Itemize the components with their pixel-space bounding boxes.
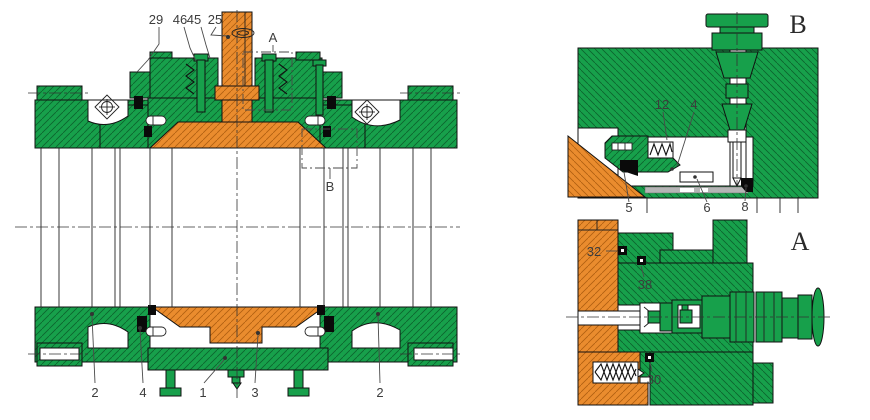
seal xyxy=(134,96,143,109)
bolt-head xyxy=(160,388,181,396)
main-section-view: A B 29 46 45 25 2 4 1 3 xyxy=(15,10,460,400)
callout-6: 6 xyxy=(703,200,710,215)
break-lines xyxy=(647,197,798,213)
seal xyxy=(148,305,156,315)
gland-right-cap xyxy=(296,52,320,60)
pin xyxy=(305,116,325,125)
housing-bottom-ext xyxy=(753,363,773,403)
bore-lines xyxy=(41,148,431,307)
callout-46: 46 xyxy=(173,12,187,27)
drain-plug xyxy=(228,370,244,377)
callout-2-right: 2 xyxy=(376,385,383,400)
bolt-shaft xyxy=(166,370,175,388)
seat-face-insert xyxy=(645,187,748,193)
stud-bolt xyxy=(197,60,205,112)
callout-12: 12 xyxy=(655,97,669,112)
valve-drawing: A B 29 46 45 25 2 4 1 3 xyxy=(0,0,870,420)
stud-bolt xyxy=(265,60,273,112)
seal xyxy=(327,96,336,109)
pin xyxy=(146,116,166,125)
gland-left xyxy=(150,58,218,98)
callout-30: 30 xyxy=(647,372,661,387)
fitting-pin xyxy=(682,305,688,310)
callout-3: 3 xyxy=(251,385,258,400)
housing-bottom-block xyxy=(650,352,753,405)
seat-pins xyxy=(146,116,325,336)
seat-retainer xyxy=(612,143,632,150)
housing-tower xyxy=(713,220,747,263)
seal xyxy=(324,316,334,332)
pin xyxy=(305,327,325,336)
callout-1: 1 xyxy=(199,385,206,400)
fitting-spacer xyxy=(782,298,798,338)
callout-5: 5 xyxy=(625,200,632,215)
seal xyxy=(144,126,152,137)
callout-4b: 4 xyxy=(690,97,697,112)
housing-step xyxy=(660,250,713,263)
bolt-head xyxy=(288,388,309,396)
ball-bottom-trunnion xyxy=(152,307,324,343)
drain-plug xyxy=(232,377,240,383)
callout-4: 4 xyxy=(139,385,146,400)
detail-view-b: 12 4 5 6 8 B xyxy=(568,10,818,215)
bolt-shaft xyxy=(294,370,303,388)
detail-marker-b: B xyxy=(326,179,335,194)
callout-29: 29 xyxy=(149,12,163,27)
stud-bolt xyxy=(316,65,323,115)
seat-face-gap xyxy=(680,188,694,192)
detail-view-a: 32 38 30 A xyxy=(566,220,833,405)
detail-marker-a: A xyxy=(269,30,278,45)
pocket xyxy=(352,323,400,348)
callout-2-left: 2 xyxy=(91,385,98,400)
cover-bolts xyxy=(160,370,309,396)
bottom-cover-plate xyxy=(148,348,328,370)
stem-bar xyxy=(578,220,618,352)
stem-bore xyxy=(578,311,644,325)
pocket xyxy=(352,100,400,126)
seal xyxy=(137,316,147,332)
callout-38: 38 xyxy=(638,277,652,292)
callout-8: 8 xyxy=(741,199,748,214)
fitting-nub xyxy=(680,310,692,323)
drawing-canvas: A B 29 46 45 25 2 4 1 3 xyxy=(0,0,870,420)
callout-45: 45 xyxy=(187,12,201,27)
seal xyxy=(323,126,331,137)
callout-25: 25 xyxy=(208,12,222,27)
callout-32: 32 xyxy=(587,244,601,259)
pin xyxy=(146,327,166,336)
gland-right-outer xyxy=(322,72,342,98)
ball-top xyxy=(150,122,326,148)
gland-left-outer xyxy=(130,72,150,98)
detail-a-title: A xyxy=(791,227,810,256)
detail-b-title: B xyxy=(789,10,806,39)
